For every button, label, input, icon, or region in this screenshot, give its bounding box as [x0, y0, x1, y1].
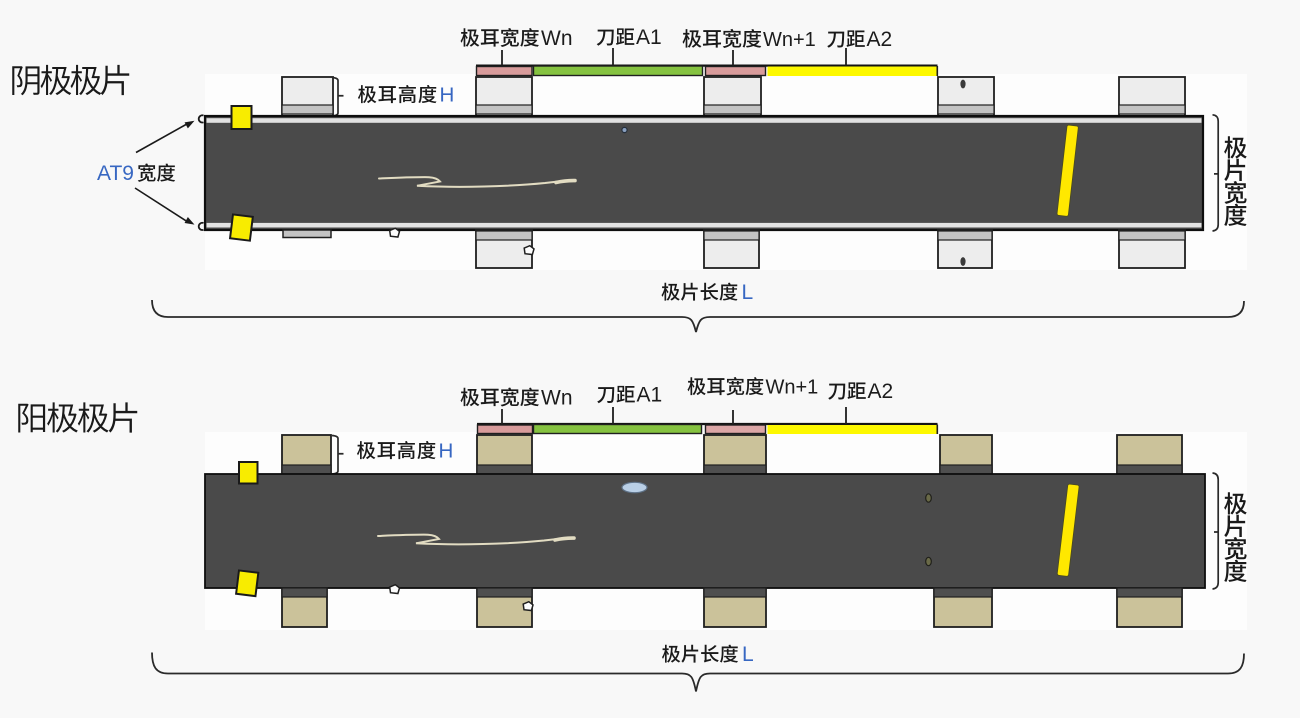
svg-text:L: L [742, 643, 754, 666]
svg-text:Wn: Wn [541, 27, 573, 50]
svg-text:A2: A2 [867, 28, 893, 51]
svg-text:H: H [439, 440, 454, 463]
svg-text:Wn+1: Wn+1 [763, 29, 816, 51]
svg-text:A1: A1 [636, 26, 662, 49]
svg-text:A2: A2 [868, 380, 894, 403]
svg-text:H: H [440, 84, 455, 107]
svg-text:AT9: AT9 [97, 162, 134, 185]
svg-text:Wn: Wn [541, 387, 573, 410]
svg-text:A1: A1 [637, 384, 663, 407]
svg-text:Wn+1: Wn+1 [766, 377, 819, 399]
svg-text:L: L [742, 281, 754, 304]
